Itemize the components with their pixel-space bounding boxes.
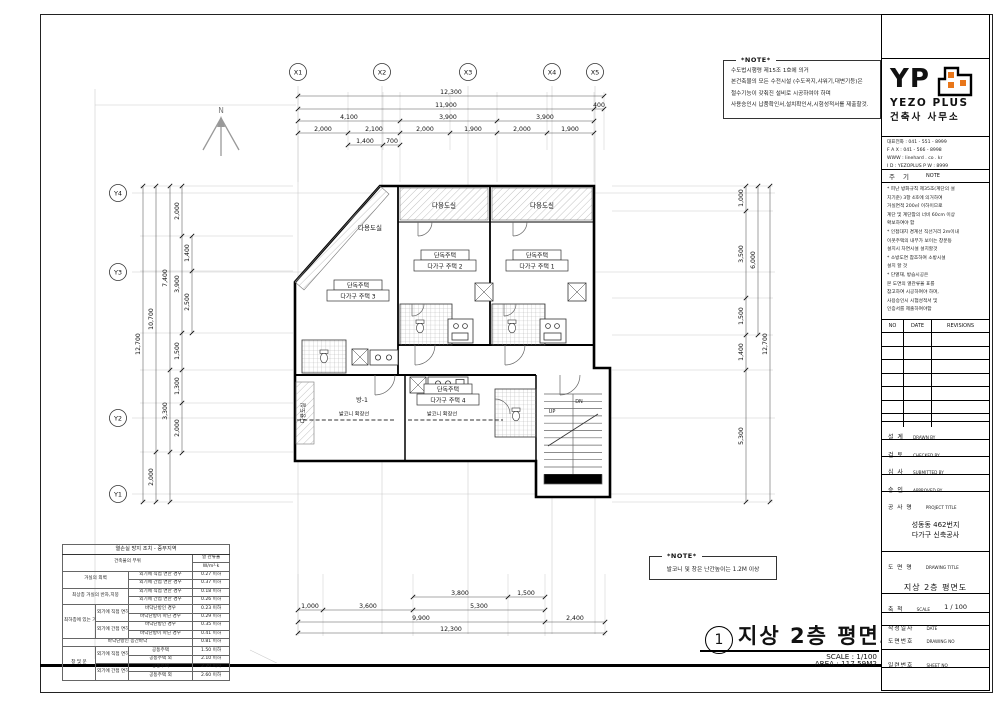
project-title-block: 공 사 명 PROJECT TITLE 성동동 462번지 다가구 신축공사 — [882, 491, 989, 551]
heat-cell: 0.26 이하 — [193, 596, 230, 604]
revisions-rows — [882, 332, 989, 421]
room-label: 방-1 — [356, 396, 368, 404]
project-label-en: PROJECT TITLE — [926, 505, 957, 510]
dim-label: 3,900 — [439, 114, 457, 121]
heat-cell: 외기에 직접 면한 경우 — [129, 588, 193, 596]
drawing-sheet: { "note_top": { "title": "*NOTE*", "body… — [0, 0, 1000, 706]
grid-label: X3 — [464, 69, 473, 77]
dim-label: 2,000 — [174, 202, 181, 220]
room-label: 단독주택 — [434, 252, 456, 260]
firm-contact-text: 대표전화 : 041 - 551 - 8999 F A X : 041 - 56… — [882, 137, 989, 173]
heat-cell: 0.37 이하 — [193, 580, 230, 588]
balcony-extension-label: 발코니 확장선 — [427, 410, 458, 418]
heat-cell: 0.18 이하 — [193, 588, 230, 596]
heat-cell: 2.10 이하 — [193, 655, 230, 663]
top-note-body: 수도법시행령 제15조 1호에 의거 본건축물의 모든 수전시설 (수도꼭지,샤… — [724, 61, 880, 114]
dim-label: 5,300 — [470, 603, 488, 610]
heat-cell: 바닥난방이 아닌 경우 — [129, 613, 193, 621]
room-label: 단독주택 — [437, 386, 459, 394]
heat-header-unit: W/m²·k — [193, 563, 230, 571]
revision-row — [882, 346, 989, 360]
heat-header-part: 건축물의 부위 — [63, 555, 193, 572]
room-label: 다가구 주택 1 — [519, 263, 554, 271]
heat-cell: 2.60 이하 — [193, 672, 230, 680]
revision-row — [882, 332, 989, 346]
room-label: 단독주택 — [526, 252, 548, 260]
room-label: 다용도실 — [299, 403, 307, 424]
heat-cell: 바닥난방인 층간바닥 — [63, 638, 193, 646]
dim-label: 10,700 — [148, 308, 155, 330]
project-label-kr: 공 사 명 — [888, 505, 913, 511]
tb-note-kr: 주 기 — [889, 171, 912, 181]
dim-label: 2,000 — [148, 468, 155, 486]
grid-label: Y1 — [113, 491, 122, 499]
heat-cell: 공동주택 — [129, 664, 193, 672]
dim-label: 12,300 — [440, 89, 462, 96]
drawing-area-value: AREA : 117.59M2 — [700, 659, 877, 668]
dim-label: 1,900 — [561, 126, 579, 133]
heat-cell: 최상층 거실의 반자,지붕 — [63, 588, 129, 605]
tb-note-body-block: * 피난 방화규칙 제35조(계단의 설 치기준) 3항 4호에 의거하여 거실… — [882, 182, 989, 319]
dim-label: 12,700 — [135, 333, 142, 355]
drawing-title-block: 도 면 명 DRAWING TITLE 지상 2층 평면도 — [882, 551, 989, 593]
tb-note-en: NOTE — [926, 173, 940, 179]
heat-cell: 최하층에 있는 거실의 바닥 — [63, 605, 96, 639]
top-note-title: *NOTE* — [736, 56, 776, 64]
bottom-note-title: *NOTE* — [662, 552, 702, 560]
title-block: YP YEZO PLUS 건축사 사무소 대표전화 : 041 - 551 - … — [881, 14, 990, 691]
heat-cell: 바닥난방이 아닌 경우 — [129, 630, 193, 638]
dim-label: 1,000 — [738, 189, 745, 207]
grid-label: Y4 — [113, 190, 122, 198]
dim-label: 12,700 — [762, 333, 769, 355]
heat-cell: 외기에 간접 면한 경우 — [129, 596, 193, 604]
heat-cell: 외기에 직접 면하는 경우 — [96, 605, 129, 622]
dim-label: 4,100 — [340, 114, 358, 121]
grid-label: X4 — [548, 69, 557, 77]
heat-cell: 외기에 직접 면하는 경우 — [96, 647, 129, 664]
heat-table-title: 열손실 방지 조치 - 중부지역 — [63, 545, 230, 555]
heat-cell: 공동주택 외 — [129, 655, 193, 663]
grid-label: Y3 — [113, 269, 122, 277]
revision-row — [882, 400, 989, 414]
heat-cell: 바닥난방인 경우 — [129, 622, 193, 630]
heat-cell: 바닥난방인 경우 — [129, 605, 193, 613]
heat-loss-table: 열손실 방지 조치 - 중부지역 건축물의 부위 열 관류율 W/m²·k 거실… — [62, 544, 230, 681]
firm-logo-block: YP YEZO PLUS 건축사 사무소 — [882, 58, 989, 136]
heat-cell: 0.29 이하 — [193, 613, 230, 621]
room-label: 다용도실 — [530, 201, 554, 210]
stairs-down-label: DN — [575, 399, 583, 405]
scale-value: 1 / 100 — [944, 603, 967, 611]
drawing-name: 지상 2층 평면도 — [882, 582, 989, 593]
room-label: 다가구 주택 4 — [430, 397, 465, 405]
dim-label: 3,900 — [536, 114, 554, 121]
heat-cell: 0.23 이하 — [193, 605, 230, 613]
sheet-no-block: 일련번호 SHEET NO — [882, 649, 989, 668]
drawing-title: 지상 2층 평면도 — [738, 620, 880, 650]
drawing-no-label-en: DRAWING NO — [926, 639, 954, 644]
tb-note-body: * 피난 방화규칙 제35조(계단의 설 치기준) 3항 4호에 의거하여 거실… — [882, 183, 989, 318]
dim-label: 2,000 — [314, 126, 332, 133]
dim-label: 1,900 — [464, 126, 482, 133]
dim-label: 3,600 — [359, 603, 377, 610]
heat-cell: 거실의 외벽 — [63, 571, 129, 588]
dim-label: 12,300 — [440, 626, 462, 633]
revision-row — [882, 373, 989, 387]
project-name: 성동동 462번지 다가구 신축공사 — [882, 520, 989, 540]
firm-name: YEZO PLUS — [890, 97, 981, 109]
date-block: 작성일자 DATE — [882, 612, 989, 625]
dim-label: 3,500 — [738, 245, 745, 263]
room-label: 다용도실 — [432, 201, 456, 210]
room-label: 다용도실 — [358, 223, 382, 232]
logo-yp-text: YP — [890, 65, 930, 93]
heat-cell: 0.35 이하 — [193, 622, 230, 630]
dim-label: 1,400 — [738, 343, 745, 361]
dim-label: 5,300 — [738, 427, 745, 445]
scale-block: 축 척 SCALE 1 / 100 — [882, 593, 989, 612]
dim-label: 1,400 — [184, 244, 191, 262]
dim-label: 1,300 — [174, 377, 181, 395]
dim-label: 1,500 — [517, 590, 535, 597]
dim-label: 11,900 — [435, 102, 457, 109]
top-note-box: *NOTE* 수도법시행령 제15조 1호에 의거 본건축물의 모든 수전시설 … — [723, 60, 881, 119]
north-label: N — [218, 106, 224, 115]
heat-cell: 외기에 직접 면한 경우 — [129, 571, 193, 579]
heat-cell: 외기에 간접 면하는 경우 — [96, 622, 129, 639]
sign-row-drawn: 설 계DRAWN BY — [882, 421, 989, 439]
building-logo-icon — [936, 65, 974, 97]
dim-label: 2,500 — [184, 293, 191, 311]
dim-label: 2,000 — [174, 419, 181, 437]
tb-note-header: 주 기 NOTE — [882, 169, 989, 182]
dim-label: 1,400 — [356, 138, 374, 145]
building-plan: UP DN 발코니 확장선 발코니 확장선 단독주택 다가구 주택 2 단독주택… — [295, 186, 610, 497]
drawing-no-block: 도면번호 DRAWING NO — [882, 625, 989, 649]
grid-label: X5 — [591, 69, 600, 77]
heat-cell: 0.41 이하 — [193, 630, 230, 638]
drawing-no-label-kr: 도면번호 — [888, 639, 913, 645]
dim-label: 6,000 — [750, 251, 757, 269]
dim-label: 3,900 — [174, 275, 181, 293]
dim-label: 1,500 — [738, 307, 745, 325]
room-label: 다가구 주택 2 — [427, 263, 462, 271]
sign-row-checked: 검 토CHECKED BY — [882, 439, 989, 457]
dim-label: 2,100 — [365, 126, 383, 133]
dim-label: 9,900 — [412, 615, 430, 622]
grid-label: X1 — [294, 69, 303, 77]
dim-label: 700 — [386, 138, 398, 145]
sign-row-submitted: 심 사SUBMITTED BY — [882, 456, 989, 474]
dim-label: 3,800 — [451, 590, 469, 597]
dim-label: 2,000 — [513, 126, 531, 133]
heat-cell: 창 및 문 — [63, 647, 96, 681]
dim-label: 1,000 — [301, 603, 319, 610]
firm-subtitle: 건축사 사무소 — [890, 109, 981, 123]
sheet-no-label-en: SHEET NO — [926, 663, 947, 668]
heat-cell: 외기에 간접 면한 경우 — [129, 580, 193, 588]
dim-label: 2,400 — [566, 615, 584, 622]
grid-label: Y2 — [113, 415, 122, 423]
dim-label: 3,300 — [162, 402, 169, 420]
heat-cell: 공동주택 외 — [129, 672, 193, 680]
heat-cell: 2.20 이하 — [193, 664, 230, 672]
grid-label: X2 — [378, 69, 387, 77]
revisions-header: NO DATE REVISIONS — [882, 319, 989, 332]
dim-label: 2,000 — [416, 126, 434, 133]
heat-loss-table-wrap: 열손실 방지 조치 - 중부지역 건축물의 부위 열 관류율 W/m²·k 거실… — [62, 544, 230, 681]
revision-row — [882, 386, 989, 400]
heat-cell: 공동주택 — [129, 647, 193, 655]
heat-cell: 1.50 이하 — [193, 647, 230, 655]
room-label: 단독주택 — [347, 282, 369, 290]
sign-row-approved: 승 인APPROVED BY — [882, 474, 989, 492]
heat-cell: 0.81 이하 — [193, 638, 230, 646]
firm-contact-block: 대표전화 : 041 - 551 - 8999 F A X : 041 - 56… — [882, 136, 989, 169]
stairs-up-label: UP — [549, 409, 556, 415]
bottom-note-box: *NOTE* 발코니 및 창은 난간높이는 1.2M 이상 — [649, 556, 777, 580]
drawing-label-kr: 도 면 명 — [888, 565, 913, 571]
heat-header-u: 열 관류율 — [193, 555, 230, 563]
room-label: 다가구 주택 3 — [340, 293, 375, 301]
dim-label: 7,400 — [162, 269, 169, 287]
dim-label: 1,500 — [174, 342, 181, 360]
heat-cell: 외기에 간접 면하는 경우 — [96, 664, 129, 681]
heat-cell: 0.27 이하 — [193, 571, 230, 579]
north-arrow-icon: N — [203, 106, 239, 156]
sheet-no-label-kr: 일련번호 — [888, 663, 913, 669]
dim-label: 400 — [593, 102, 605, 109]
balcony-extension-label: 발코니 확장선 — [339, 410, 370, 418]
revision-row — [882, 359, 989, 373]
drawing-label-en: DRAWING TITLE — [926, 565, 959, 570]
